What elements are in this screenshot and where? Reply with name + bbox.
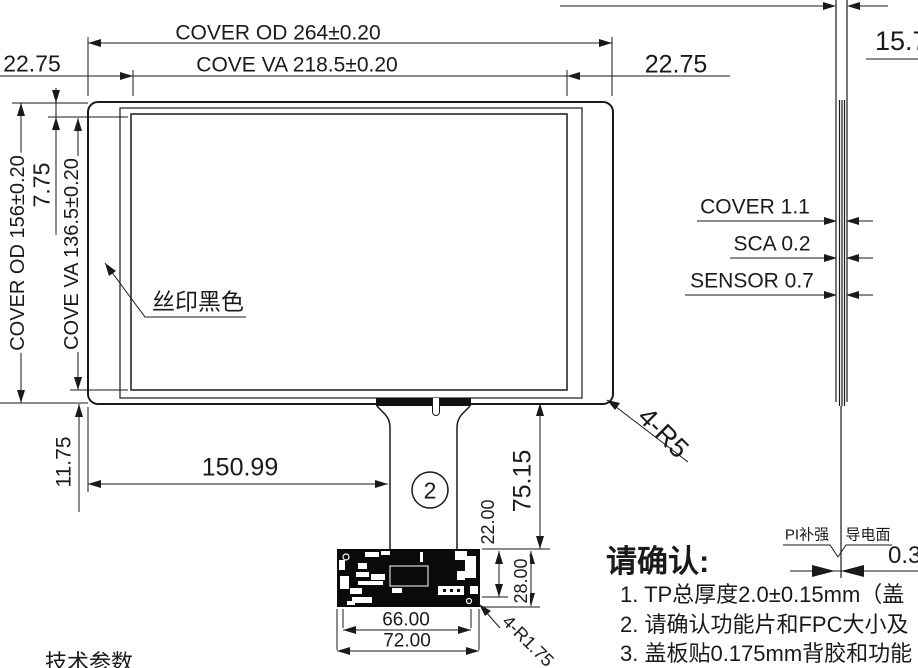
conductive-face-label: 导电面 <box>845 528 890 543</box>
layer-sensor-label: SENSOR 0.7 <box>690 271 814 292</box>
dim-cover-va-width: COVE VA 218.5±0.20 <box>196 55 397 76</box>
note-line-1: 1. TP总厚度2.0±0.15mm（盖 <box>620 584 904 606</box>
dim-cover-od-height: COVER OD 156±0.20 <box>8 153 28 353</box>
dim-margin-right: 22.75 <box>645 53 708 78</box>
dim-side-edge: 15.7 <box>875 28 918 55</box>
confirm-title: 请确认: <box>606 546 709 577</box>
side-view-stack <box>836 0 847 578</box>
note-line-2: 2. 请确认功能片和FPC大小及 <box>620 614 908 636</box>
dim-bottom-border: 11.75 <box>54 435 75 490</box>
dim-fpc-offset: 150.99 <box>202 456 278 481</box>
fpc-pcb-board <box>337 549 480 607</box>
dim-fpc-tail-length: 75.15 <box>511 448 536 515</box>
footer-tech-params: 技术参数 <box>45 652 133 668</box>
note-line-3: 3. 盖板贴0.175mm背胶和功能 <box>620 643 912 665</box>
dim-fpc-thickness: 0.3 <box>888 544 918 568</box>
layer-sca-label: SCA 0.2 <box>733 234 810 255</box>
pi-stiffener-label: PI补强 <box>785 528 829 543</box>
panel-outline <box>88 102 613 404</box>
dim-board-width: 72.00 <box>381 632 433 651</box>
dim-board-inner-width: 66.00 <box>380 611 432 630</box>
dim-board-height: 28.00 <box>512 556 530 605</box>
drawing-linework <box>0 0 918 668</box>
layer-cover-label: COVER 1.1 <box>700 197 810 218</box>
dim-board-upper: 22.00 <box>479 497 497 546</box>
dim-cover-va-height: COVE VA 136.5±0.20 <box>62 156 82 352</box>
dim-top-border: 7.75 <box>31 161 54 210</box>
detail-marker-2: 2 <box>424 480 437 503</box>
engineering-drawing-canvas: COVER OD 264±0.20 COVE VA 218.5±0.20 22.… <box>0 0 918 668</box>
dim-cover-od-width: COVER OD 264±0.20 <box>175 23 380 44</box>
dim-margin-left: 22.75 <box>3 53 61 76</box>
silk-print-label: 丝印黑色 <box>152 291 244 314</box>
